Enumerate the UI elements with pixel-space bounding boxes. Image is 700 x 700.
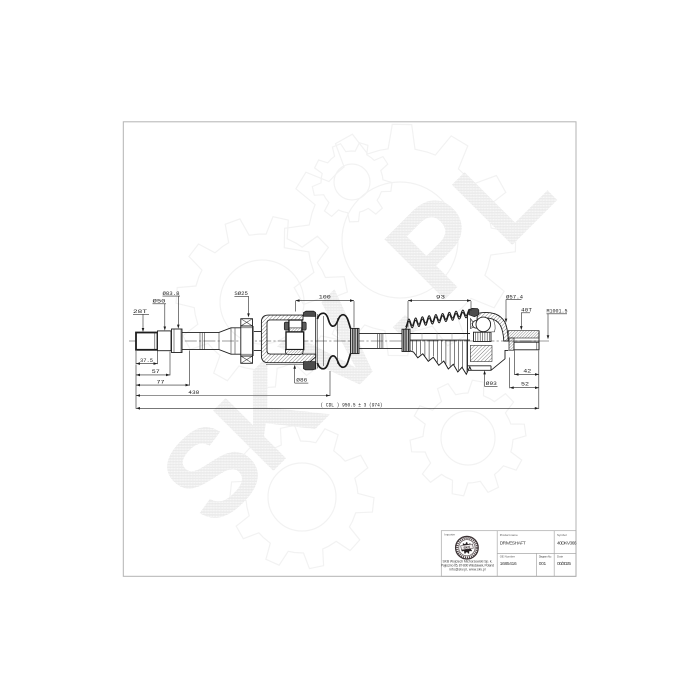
svg-text:430: 430 (188, 389, 199, 396)
svg-text:1685416: 1685416 (500, 561, 517, 567)
svg-text:37.5: 37.5 (140, 357, 153, 364)
svg-text:93: 93 (436, 294, 446, 301)
svg-text:Ø93: Ø93 (486, 380, 497, 387)
svg-text:Date: Date (557, 554, 563, 558)
svg-text:Product name: Product name (500, 533, 518, 537)
svg-text:Ø86: Ø86 (296, 377, 307, 384)
svg-text:00/3025: 00/3025 (557, 561, 571, 567)
svg-text:001: 001 (539, 561, 547, 567)
svg-text:Symbol: Symbol (557, 533, 567, 537)
svg-text:info@skv.pl, www.skv.pl: info@skv.pl, www.skv.pl (450, 568, 486, 572)
svg-text:( CDL ) 950.5 ± 3 (974): ( CDL ) 950.5 ± 3 (974) (321, 401, 383, 408)
svg-text:Diagram No:: Diagram No: (539, 554, 552, 558)
svg-text:77: 77 (157, 378, 166, 385)
svg-text:52: 52 (521, 381, 530, 388)
svg-text:DRIVESHAFT: DRIVESHAFT (500, 540, 526, 546)
svg-text:100: 100 (319, 294, 332, 301)
svg-text:40DKV366: 40DKV366 (557, 540, 577, 546)
svg-text:Importer: Importer (444, 532, 455, 536)
svg-text:57: 57 (152, 368, 161, 375)
svg-text:OE Number: OE Number (500, 554, 515, 558)
svg-text:42: 42 (523, 367, 532, 374)
